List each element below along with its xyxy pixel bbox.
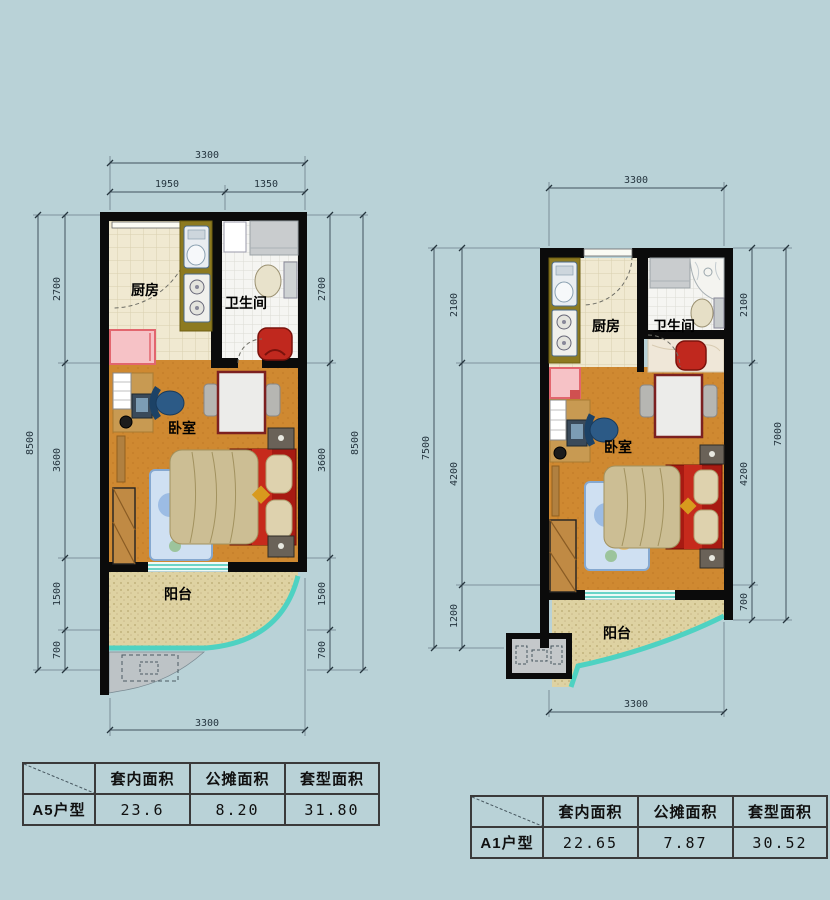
bathroom-label: 卫生间: [653, 318, 695, 334]
table-a1-shared-area-value: 7.87: [638, 827, 733, 858]
sink-basin: [188, 230, 205, 239]
bath-seat: [258, 328, 292, 360]
svg-text:1350: 1350: [254, 179, 278, 190]
pillow: [694, 510, 718, 544]
balcony: [552, 600, 724, 687]
bath-counter: [250, 221, 298, 255]
table-a5-header-inner-area: 套内面积: [95, 763, 190, 794]
table-a5-header-shared-area: 公摊面积: [190, 763, 285, 794]
side-board: [552, 466, 559, 516]
waste-bin: [120, 416, 132, 428]
nightstand: [268, 536, 294, 557]
svg-text:1950: 1950: [155, 179, 179, 190]
wardrobe: [113, 488, 135, 564]
pillow: [266, 455, 292, 493]
kitchen-counter: [549, 258, 580, 363]
table-a5-inner-area-value: 23.6: [95, 794, 190, 825]
bedroom-label: 卧室: [168, 420, 196, 436]
dim-right: 2700 3600 1500 700 8500: [307, 212, 368, 673]
area-table-a1: 套内面积 公摊面积 套型面积 A1户型 22.65 7.87 30.52: [470, 795, 828, 859]
svg-text:7500: 7500: [421, 436, 432, 460]
bath-counter: [650, 258, 690, 288]
area-table-a5: 套内面积 公摊面积 套型面积 A5户型 23.6 8.20 31.80: [22, 762, 380, 826]
table-a5-header-total-area: 套型面积: [285, 763, 379, 794]
svg-text:700: 700: [52, 641, 63, 659]
bath-seat: [676, 341, 706, 370]
svg-text:2700: 2700: [52, 277, 63, 301]
dim-right: 2100 4200 700 7000: [733, 245, 792, 623]
diagonal-line: [472, 797, 542, 826]
kitchen-label: 厨房: [131, 282, 159, 298]
sink-bowl: [187, 245, 205, 265]
svg-text:7000: 7000: [773, 422, 784, 446]
svg-text:3300: 3300: [195, 718, 219, 729]
svg-text:2100: 2100: [449, 293, 460, 317]
table-a1-inner-area-value: 22.65: [543, 827, 638, 858]
balcony-door: [148, 562, 228, 571]
balcony-label: 阳台: [164, 586, 192, 602]
ac-platform: [506, 633, 572, 679]
floorplan-a1: 厨房 卫生间 卧室: [410, 160, 830, 730]
toilet: [691, 298, 724, 328]
dim-top: 3300: [546, 175, 727, 246]
kitchen-cabinet: [110, 330, 155, 364]
svg-text:700: 700: [739, 593, 750, 611]
pillow: [694, 470, 718, 504]
dim-top: 3300 1950 1350: [107, 150, 308, 210]
table-a1-header-shared-area: 公摊面积: [638, 796, 733, 827]
table-a5-unit-label: A5户型: [23, 794, 95, 825]
diagonal-line: [24, 764, 94, 793]
svg-text:3300: 3300: [195, 150, 219, 161]
washer: [224, 222, 246, 252]
svg-text:2700: 2700: [317, 277, 328, 301]
kitchen-cabinet: [550, 368, 580, 399]
svg-text:8500: 8500: [350, 431, 361, 455]
balcony-door: [585, 590, 675, 599]
svg-text:700: 700: [317, 641, 328, 659]
dim-left: 8500 2700 3600 1500 700: [25, 212, 100, 673]
table-a1-total-area-value: 30.52: [733, 827, 827, 858]
svg-text:8500: 8500: [25, 431, 36, 455]
svg-text:1500: 1500: [317, 582, 328, 606]
floorplan-canvas: 厨房 卫生间 卧室: [0, 0, 830, 900]
nightstand: [700, 445, 724, 464]
pillow: [266, 500, 292, 538]
svg-text:1500: 1500: [52, 582, 63, 606]
svg-text:3300: 3300: [624, 699, 648, 710]
table-a5-shared-area-value: 8.20: [190, 794, 285, 825]
waste-bin: [554, 447, 566, 459]
bedroom-label: 卧室: [604, 439, 632, 455]
table-a1-corner-cell: [471, 796, 543, 827]
svg-text:3600: 3600: [317, 448, 328, 472]
svg-text:1200: 1200: [449, 604, 460, 628]
sink-basin: [556, 266, 573, 275]
balcony: [109, 572, 298, 693]
bed: [604, 465, 722, 549]
table-a5-total-area-value: 31.80: [285, 794, 379, 825]
nightstand: [268, 428, 294, 449]
svg-text:2100: 2100: [739, 293, 750, 317]
svg-text:4200: 4200: [739, 462, 750, 486]
balcony-label: 阳台: [603, 625, 631, 641]
kitchen-counter: [180, 221, 212, 331]
table-a1-header-total-area: 套型面积: [733, 796, 827, 827]
sink-bowl: [555, 282, 573, 302]
shower-area: [648, 339, 724, 372]
desk: [113, 373, 153, 432]
table-a5-corner-cell: [23, 763, 95, 794]
kitchen-label: 厨房: [592, 318, 620, 334]
table-a1-unit-label: A1户型: [471, 827, 543, 858]
nightstand: [700, 549, 724, 568]
wardrobe: [550, 520, 576, 592]
bathroom-label: 卫生间: [225, 295, 267, 311]
dim-left: 7500 2100 4200 1200: [421, 245, 540, 651]
svg-text:3300: 3300: [624, 175, 648, 186]
floorplan-a5: 厨房 卫生间 卧室: [0, 140, 400, 750]
bed: [170, 449, 296, 545]
svg-text:3600: 3600: [52, 448, 63, 472]
side-board: [117, 436, 125, 482]
svg-text:4200: 4200: [449, 462, 460, 486]
table-a1-header-inner-area: 套内面积: [543, 796, 638, 827]
